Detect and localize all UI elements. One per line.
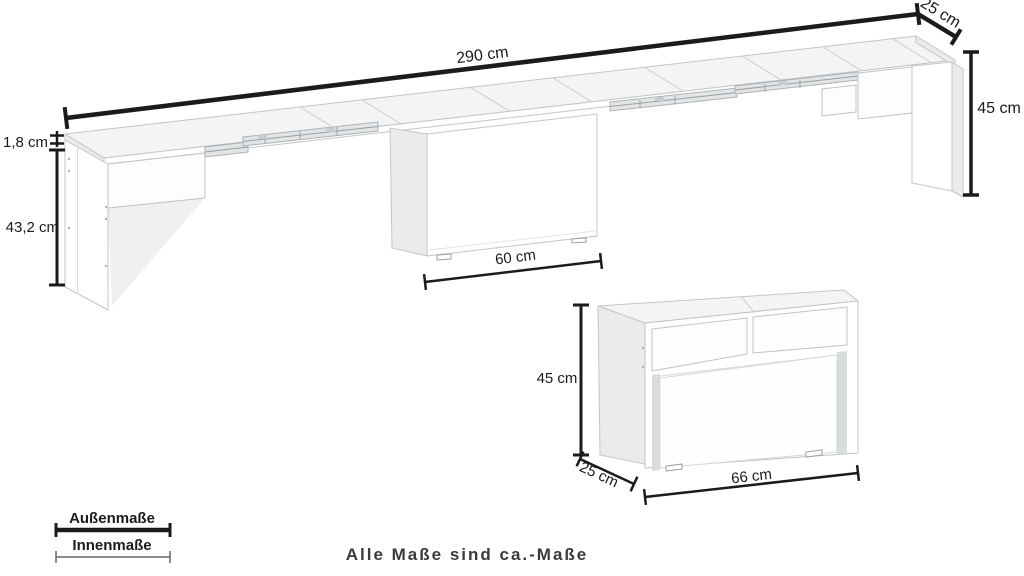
- dim-height-label: 45 cm: [977, 100, 1021, 117]
- right-apron-panel: [858, 67, 912, 119]
- left-leg: [65, 140, 108, 310]
- pedestal-foot: [437, 254, 451, 260]
- compact-left-track: [652, 374, 660, 471]
- dim-compact-height-label: 45 cm: [537, 370, 578, 387]
- compact-right-track: [837, 351, 847, 454]
- compact-bench-drawing: [598, 290, 858, 471]
- slide-support-bracket: [822, 85, 856, 116]
- dim-inner-height-label: 43,2 cm: [6, 219, 59, 236]
- dim-top-thickness-label: 1,8 cm: [3, 134, 48, 151]
- legend-inner-label: Innenmaße: [72, 537, 151, 554]
- measurements-note: Alle Maße sind ca.-Maße: [346, 545, 589, 564]
- center-pedestal: [390, 114, 597, 260]
- furniture-dimension-diagram: 290 cm 25 cm 45 cm 1,8 cm 43,2 cm: [0, 0, 1024, 576]
- compact-left-side: [598, 306, 645, 464]
- pedestal-foot: [572, 238, 586, 243]
- legend-outer-label: Außenmaße: [69, 510, 155, 527]
- right-leg: [912, 62, 963, 197]
